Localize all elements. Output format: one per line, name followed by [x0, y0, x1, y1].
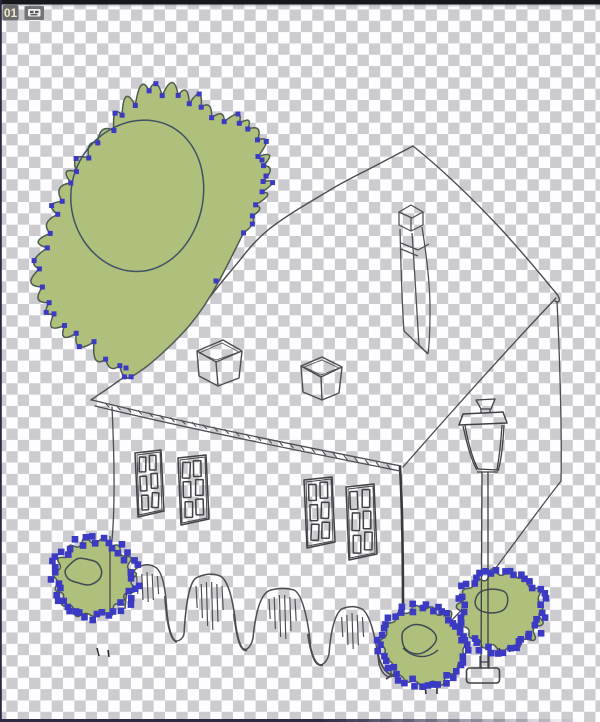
svg-text:01: 01 [4, 6, 18, 20]
